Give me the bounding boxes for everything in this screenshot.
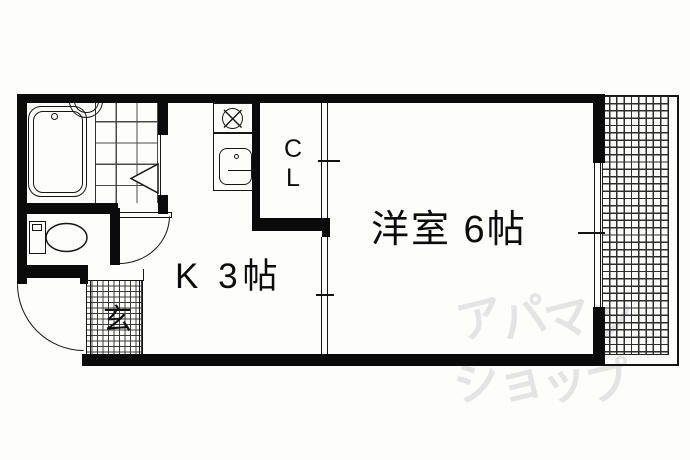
floorplan-canvas: アパマン ショップ xyxy=(0,0,690,460)
folding-door-icon xyxy=(131,164,158,193)
label-entrance: 玄 xyxy=(103,305,132,335)
label-closet: C L xyxy=(280,135,306,193)
label-western-room: 洋室 6帖 xyxy=(371,211,527,251)
toilet-bowl-icon xyxy=(46,224,87,252)
detail-overlay xyxy=(0,0,690,460)
label-kitchen: K 3帖 xyxy=(175,259,283,296)
